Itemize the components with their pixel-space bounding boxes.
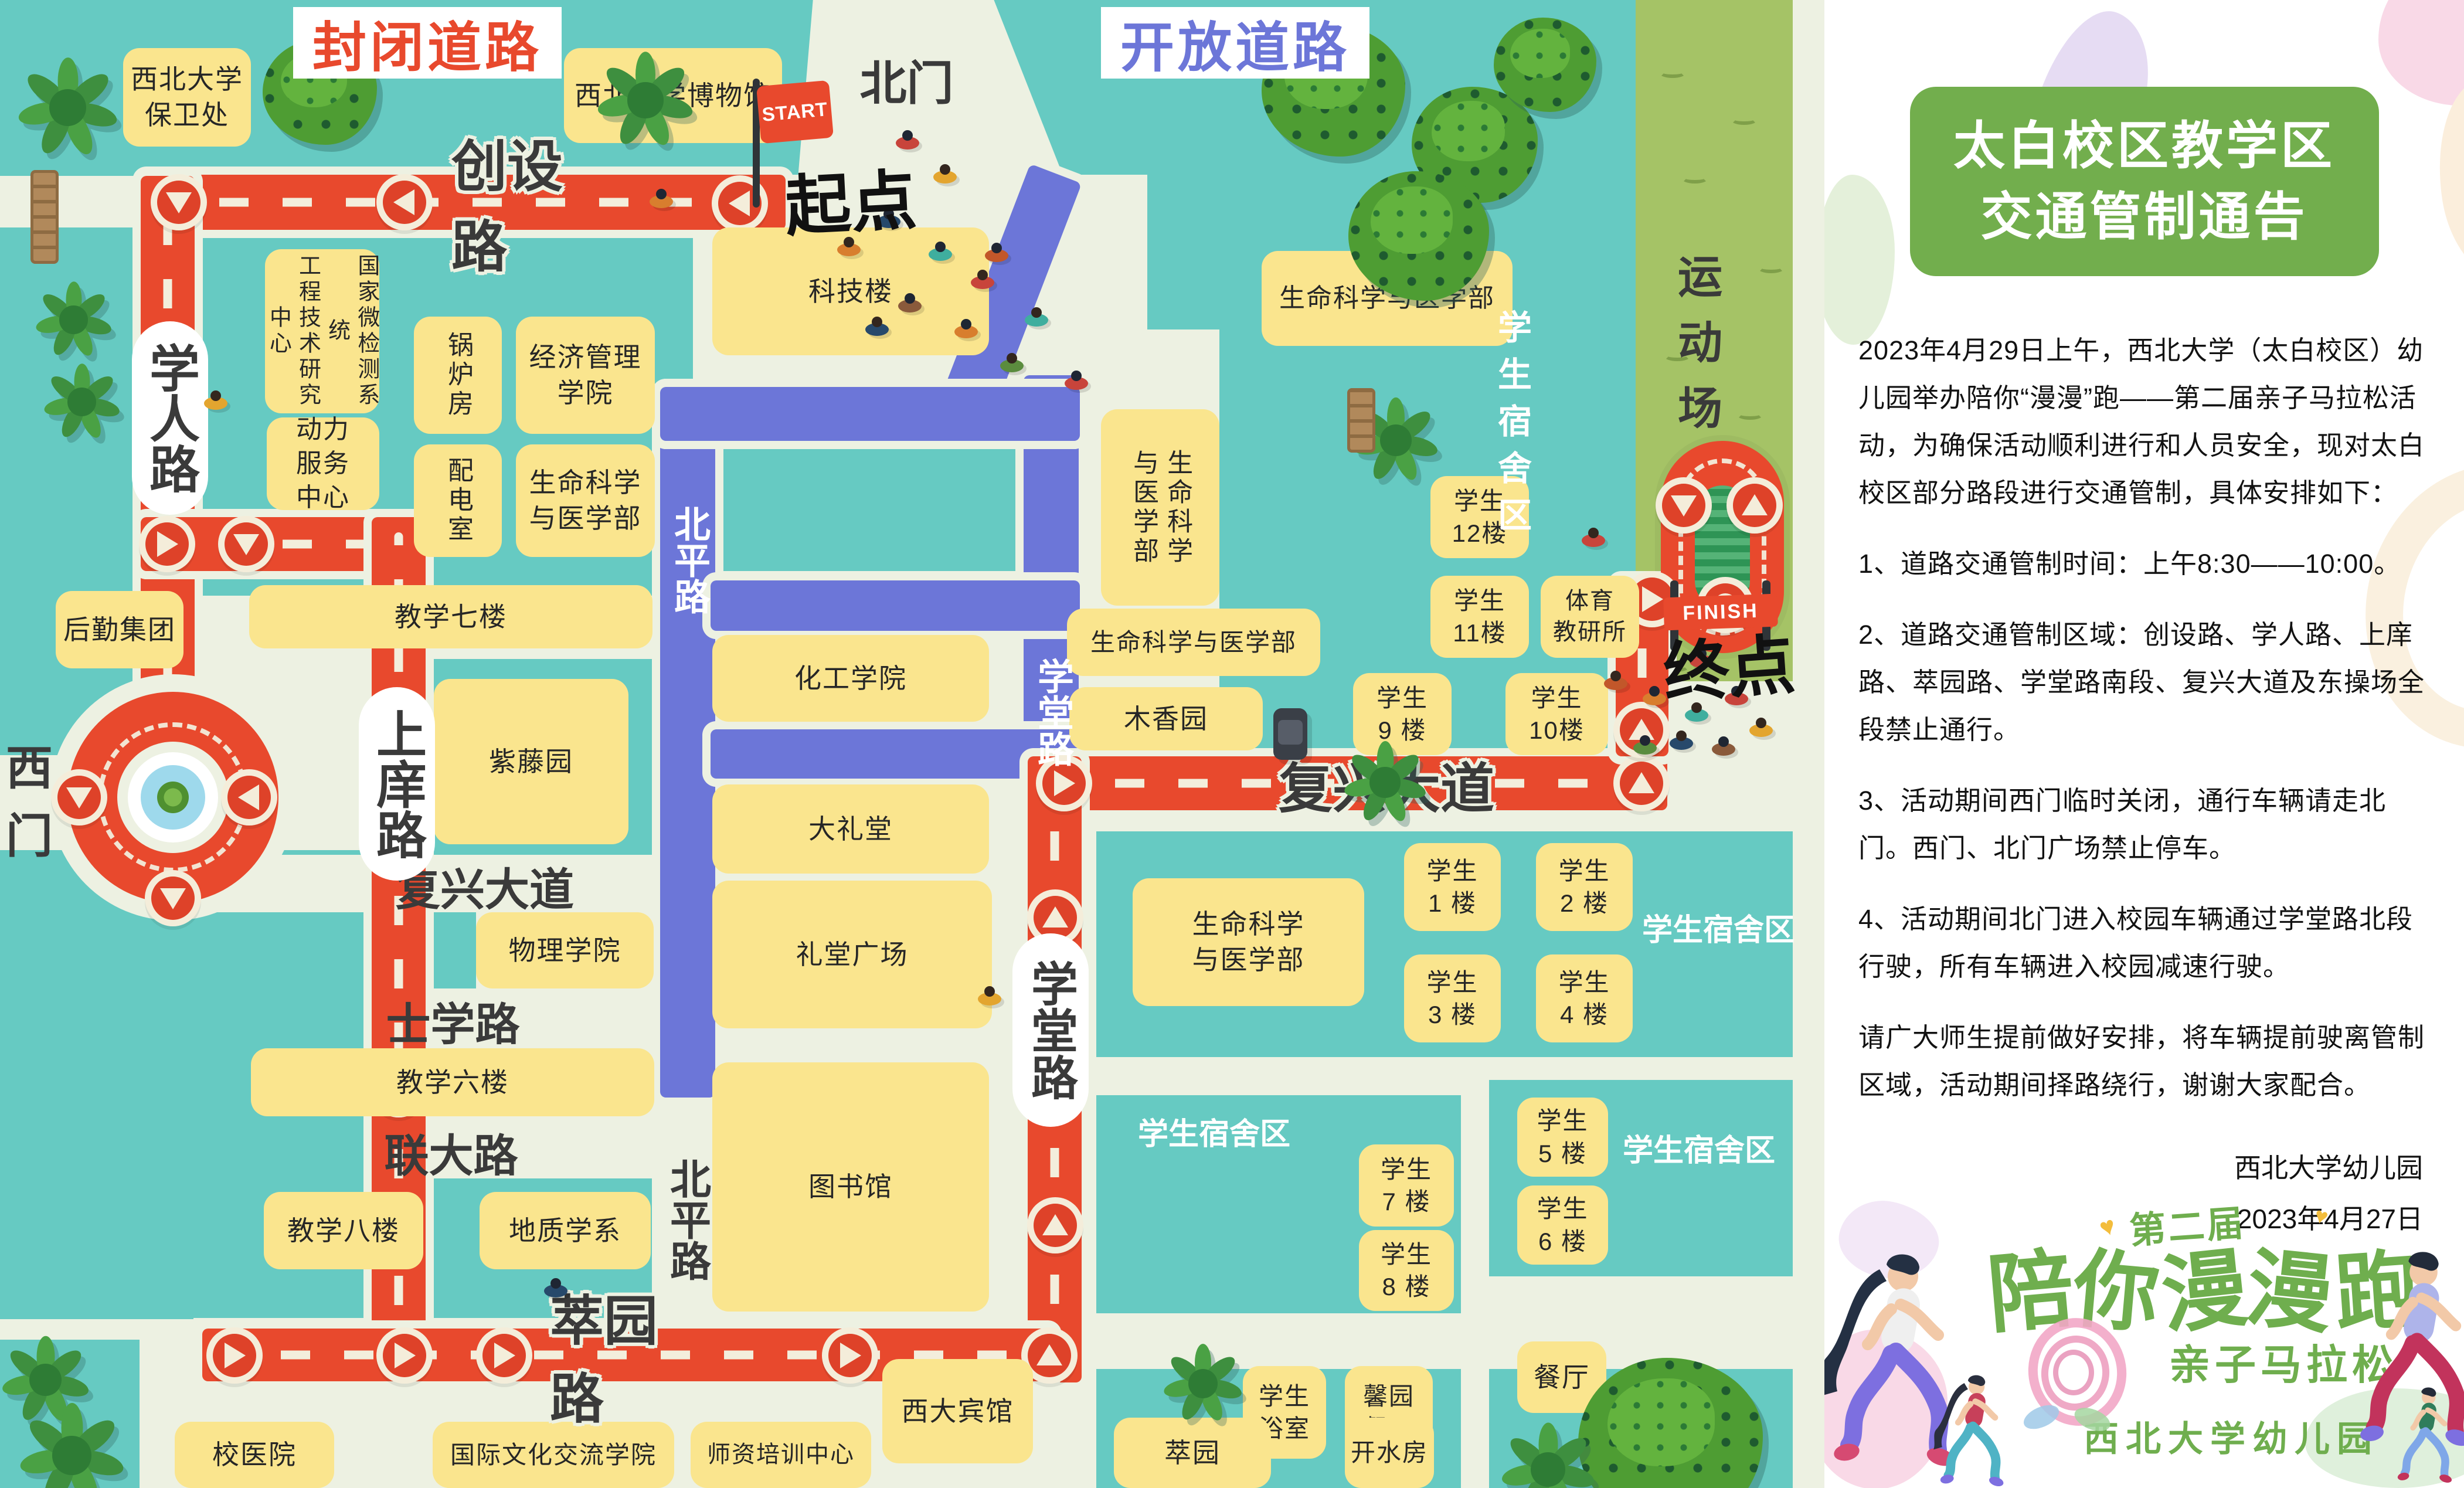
flower-logo-icon xyxy=(2018,1318,2120,1444)
pedestrian xyxy=(865,316,889,336)
building-block: 体育 教研所 xyxy=(1541,576,1639,658)
decoration xyxy=(494,1343,515,1368)
building-block: 动力 服务 中心 xyxy=(267,417,379,510)
area-label: 学生宿舍区 xyxy=(1490,258,1532,595)
pedestrian xyxy=(954,318,978,338)
pedestrian xyxy=(971,269,994,289)
pedestrian-head xyxy=(1071,371,1082,381)
building-block: 学生 6 楼 xyxy=(1517,1185,1608,1265)
building-block: 紫藤园 xyxy=(434,679,628,844)
notice-panel: 太白校区教学区 交通管制通告 2023年4月29日上午，西北大学（太白校区）幼儿… xyxy=(1824,0,2464,1488)
notice-paragraph: 请广大师生提前做好安排，将车辆提前驶离管制区域，活动期间择路绕行，谢谢大家配合。 xyxy=(1858,1014,2430,1109)
building-block: 物理学院 xyxy=(476,912,654,988)
decoration xyxy=(233,534,259,555)
road-label: 学人路 xyxy=(132,321,208,515)
area-label: 学生宿舍区 xyxy=(1619,1129,1779,1166)
building-block: 礼堂广场 xyxy=(712,881,992,1028)
decoration xyxy=(393,189,414,215)
tree-highlight xyxy=(1432,101,1505,161)
car-roof xyxy=(1278,720,1303,745)
notice-paragraph: 1、道路交通管制时间：上午8:30——10:00。 xyxy=(1858,540,2430,587)
notice-paragraph: 2023年4月29日上午，西北大学（太白校区）幼儿园举办陪你“漫漫”跑——第二届… xyxy=(1858,327,2430,517)
pedestrian xyxy=(1712,736,1735,756)
pedestrian xyxy=(978,986,1001,1005)
building-block: 锅炉房 xyxy=(414,317,502,434)
decoration xyxy=(160,888,186,909)
building-block: 后勤集团 xyxy=(56,591,183,668)
direction-badge-right-icon xyxy=(376,1327,433,1384)
notice-body: 2023年4月29日上午，西北大学（太白校区）幼儿园举办陪你“漫漫”跑——第二届… xyxy=(1858,327,2430,1109)
direction-badge-right-icon xyxy=(206,1327,263,1384)
building-block: 开水房 xyxy=(1345,1418,1434,1488)
bush-icon xyxy=(18,1401,126,1488)
bush-icon xyxy=(34,280,113,359)
area-label: 学生宿舍区 xyxy=(1134,1113,1294,1149)
grass-squiggle-icon xyxy=(1758,263,1785,273)
building-block: 生命科学 与医学部 xyxy=(516,444,655,557)
building-block: 图书馆 xyxy=(712,1062,989,1312)
building-block: 学生 8 楼 xyxy=(1359,1230,1454,1311)
legend-closed-road: 封闭道路 xyxy=(293,7,562,79)
pedestrian xyxy=(204,390,227,410)
area-label: 北平路 xyxy=(664,478,713,642)
building-block: 经济管理 学院 xyxy=(516,317,655,434)
direction-badge-down-icon xyxy=(151,174,207,230)
pedestrian xyxy=(985,242,1008,262)
bush-center xyxy=(1188,1369,1218,1398)
open-road xyxy=(711,729,1080,779)
decoration xyxy=(1742,494,1768,515)
building-block: 学生 4 楼 xyxy=(1536,954,1633,1042)
traffic-control-poster: 西北大学 保卫处西北大学博物馆科技楼国家微检测系统 工程技术研究中心动力 服务 … xyxy=(0,0,2464,1488)
logo-organization: 西北大学幼儿园 xyxy=(2084,1411,2379,1462)
flower-ring xyxy=(2053,1350,2094,1395)
road-label: 北平路 xyxy=(662,1134,713,1304)
bush-center xyxy=(627,82,663,118)
pedestrian-head xyxy=(1007,353,1017,363)
pastel-blob xyxy=(2378,0,2464,106)
pedestrian xyxy=(1670,730,1693,750)
direction-badge-down-icon xyxy=(145,870,201,926)
legend-open-road: 开放道路 xyxy=(1101,7,1369,79)
building-block: 国家微检测系统 工程技术研究中心 xyxy=(265,249,379,413)
pedestrian xyxy=(1749,717,1773,737)
pedestrian-head xyxy=(872,317,882,327)
fountain-plant-icon xyxy=(157,782,189,813)
pedestrian xyxy=(1000,352,1024,372)
pedestrian-head xyxy=(977,270,988,280)
decoration xyxy=(1629,772,1654,793)
building-block: 学生 10楼 xyxy=(1505,673,1608,755)
decoration xyxy=(1671,495,1697,517)
pedestrian-head xyxy=(961,319,971,329)
open-road xyxy=(711,580,1080,631)
start-point-label: 起点 xyxy=(773,155,929,240)
pedestrian xyxy=(1633,735,1657,755)
bench-icon xyxy=(30,170,59,264)
building-block: 学生 5 楼 xyxy=(1517,1098,1608,1177)
building-block: 师资培训中心 xyxy=(691,1422,871,1488)
pedestrian xyxy=(929,241,952,261)
building-block: 生命科学 与医学部 xyxy=(1133,878,1364,1006)
north-gate-label: 北门 xyxy=(858,53,955,107)
bush-icon xyxy=(1343,740,1428,825)
pedestrian-head xyxy=(935,242,946,252)
notice-paragraph: 2、道路交通管制区域：创设路、学人路、上庠路、萃园路、学堂路南段、复兴大道及东操… xyxy=(1858,611,2430,753)
direction-badge-up-icon xyxy=(1727,477,1783,534)
path-area xyxy=(1793,0,1824,1488)
pedestrian-head xyxy=(1676,731,1687,741)
runner-boy xyxy=(2381,1384,2463,1488)
grass-squiggle-icon xyxy=(1736,409,1763,420)
building-block: 西北大学 保卫处 xyxy=(123,48,251,147)
pedestrian xyxy=(1025,307,1048,327)
campus-map: 西北大学 保卫处西北大学博物馆科技楼国家微检测系统 工程技术研究中心动力 服务 … xyxy=(0,0,1824,1488)
decoration xyxy=(1042,906,1068,928)
grass-squiggle-icon xyxy=(1681,173,1708,184)
pedestrian xyxy=(896,130,919,150)
pedestrian-head xyxy=(940,164,950,175)
grass-squiggle-icon xyxy=(1659,67,1686,78)
bush-center xyxy=(49,89,86,126)
tree-highlight xyxy=(1510,29,1570,78)
decoration xyxy=(729,191,750,216)
direction-badge-right-icon xyxy=(476,1327,532,1384)
pedestrian xyxy=(1582,527,1605,547)
pedestrian-head xyxy=(905,293,915,304)
decoration xyxy=(238,784,259,810)
direction-badge-right-icon xyxy=(139,516,195,572)
road-label: 士学路 xyxy=(384,996,522,1045)
building-block: 教学六楼 xyxy=(251,1048,654,1116)
west-gate-label: 西门 xyxy=(6,772,83,825)
building-block: 学生 2 楼 xyxy=(1536,843,1633,931)
start-flag: START xyxy=(756,80,834,144)
direction-badge-left-icon xyxy=(221,769,277,825)
decoration xyxy=(225,1343,246,1368)
building-block: 西大宾馆 xyxy=(882,1359,1033,1463)
bush-icon xyxy=(596,50,695,150)
pedestrian-head xyxy=(550,1278,561,1289)
decoration xyxy=(395,1343,416,1368)
pedestrian-head xyxy=(1588,528,1599,538)
bush-icon xyxy=(1500,1421,1596,1488)
pedestrian-head xyxy=(1756,718,1766,728)
road-label: 联大路 xyxy=(382,1127,520,1177)
building-block: 校医院 xyxy=(175,1422,334,1488)
building-block: 教学八楼 xyxy=(264,1192,423,1269)
bench-icon xyxy=(1347,388,1375,453)
building-block: 大礼堂 xyxy=(712,784,989,874)
road-label: 创设路 xyxy=(451,171,598,233)
grass-squiggle-icon xyxy=(1731,114,1758,125)
decoration xyxy=(157,531,178,557)
direction-badge-right-icon xyxy=(822,1327,878,1384)
decoration xyxy=(840,1343,861,1368)
runner-girl xyxy=(1925,1371,2013,1488)
bush-icon xyxy=(16,56,119,159)
bush-center xyxy=(52,1436,91,1475)
building-block: 教学七楼 xyxy=(249,585,652,648)
pedestrian-head xyxy=(1718,736,1729,747)
pastel-blob xyxy=(1824,175,1895,345)
bush-icon xyxy=(1162,1343,1244,1425)
pedestrian-head xyxy=(902,130,913,141)
building-block: 配电室 xyxy=(414,444,502,557)
notice-title: 太白校区教学区 交通管制通告 xyxy=(1910,87,2379,276)
bush-center xyxy=(1369,767,1400,797)
building-block: 萃园 xyxy=(1114,1418,1271,1488)
open-road xyxy=(660,387,1080,441)
road-label: 上庠路 xyxy=(359,687,435,881)
notice-paragraph: 3、活动期间西门临时关闭，通行车辆请走北门。西门、北门广场禁止停车。 xyxy=(1858,777,2430,872)
bush-center xyxy=(67,388,96,416)
direction-badge-up-icon xyxy=(1027,1197,1083,1253)
decoration xyxy=(166,192,192,213)
building-block: 学生 7 楼 xyxy=(1359,1144,1454,1227)
direction-badge-up-icon xyxy=(1613,755,1670,811)
bush-center xyxy=(1380,424,1412,456)
pedestrian xyxy=(933,164,957,184)
building-block: 学生 3 楼 xyxy=(1404,954,1501,1042)
bush-icon xyxy=(42,362,121,441)
building-block: 生命科学与医学部 xyxy=(1067,609,1320,676)
pedestrian-head xyxy=(1031,307,1042,318)
notice-title-line1: 太白校区教学区 xyxy=(1910,110,2379,181)
building-block: 化工学院 xyxy=(712,635,989,722)
building-block: 地质学系 xyxy=(480,1192,651,1269)
building-block: 生命科学 与医学部 xyxy=(1101,409,1219,606)
road-label: 学堂路 xyxy=(1012,933,1089,1127)
bush-center xyxy=(1531,1452,1565,1487)
building-block: 木香园 xyxy=(1069,687,1263,750)
campus-block xyxy=(711,435,1024,571)
direction-badge-left-icon xyxy=(376,174,433,230)
pedestrian-head xyxy=(984,986,995,997)
road-label: 运动场 xyxy=(1668,226,1722,478)
direction-badge-down-icon xyxy=(218,516,274,572)
finish-point-label: 终点 xyxy=(1653,620,1805,707)
path-area xyxy=(1668,745,1794,822)
bush-center xyxy=(59,305,88,334)
pedestrian-head xyxy=(1640,735,1650,746)
pedestrian xyxy=(898,293,922,312)
notice-title-line2: 交通管制通告 xyxy=(1910,181,2379,252)
tree-highlight xyxy=(1371,186,1452,254)
pedestrian-head xyxy=(210,390,221,401)
pedestrian xyxy=(650,188,673,208)
notice-paragraph: 4、活动期间北门进入校园车辆通过学堂路北段行驶，所有车辆进入校园减速行驶。 xyxy=(1858,895,2430,990)
decoration xyxy=(1642,586,1663,612)
pedestrian xyxy=(544,1278,567,1297)
decoration xyxy=(1042,1214,1068,1235)
pedestrian xyxy=(1604,670,1627,690)
building-block: 学生 1 楼 xyxy=(1404,843,1501,931)
area-label: 学堂路 xyxy=(1027,630,1076,794)
signature-line: 西北大学幼儿园 xyxy=(1824,1143,2423,1194)
direction-badge-down-icon xyxy=(1656,477,1712,534)
pedestrian xyxy=(1065,370,1088,390)
decoration xyxy=(1036,1344,1062,1365)
pedestrian-head xyxy=(991,243,1002,253)
pedestrian-head xyxy=(1610,671,1621,681)
tree-highlight xyxy=(1607,1378,1715,1467)
road-label: 萃园路 xyxy=(550,1326,702,1385)
pedestrian-head xyxy=(656,189,667,199)
car-icon xyxy=(1273,708,1307,760)
area-label: 学生宿舍区 xyxy=(1639,909,1798,945)
